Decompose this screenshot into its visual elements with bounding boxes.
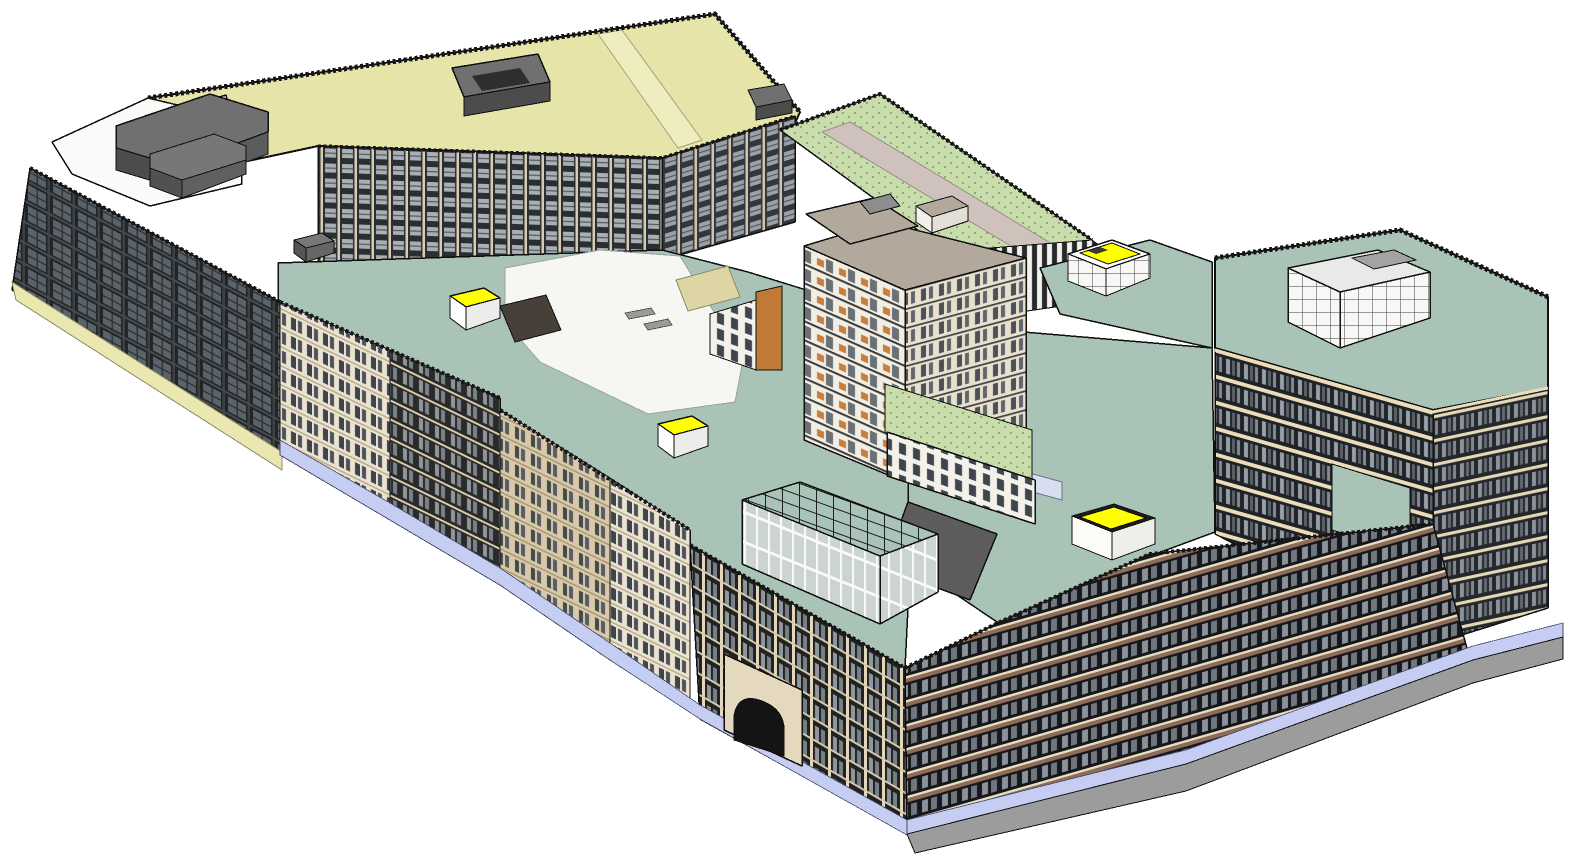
tower-balcony-strip-west [756,286,782,370]
model-svg [0,0,1574,859]
bim-model-view [0,0,1574,859]
model-shapes-layer [12,14,1563,853]
